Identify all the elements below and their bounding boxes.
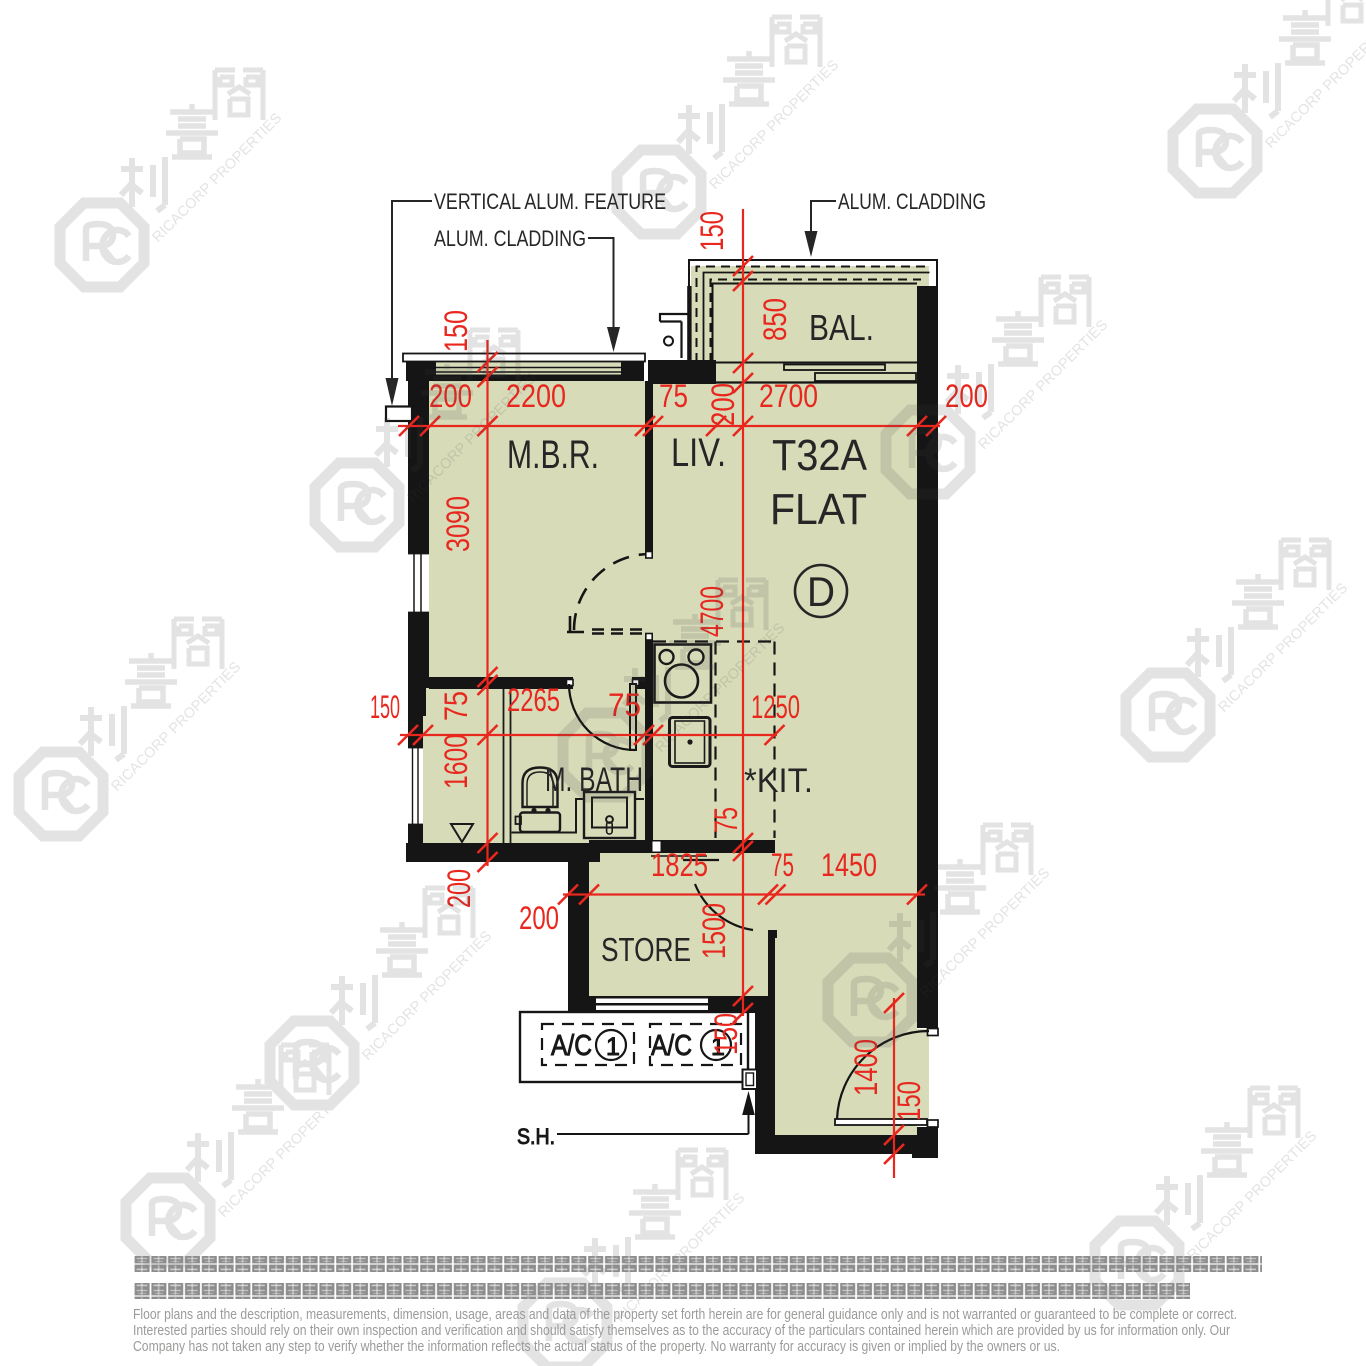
svg-text:Company has not taken any step: Company has not taken any step to verify… [133,1339,1060,1355]
svg-text:150: 150 [370,689,400,725]
svg-text:200: 200 [705,383,741,426]
svg-text:75: 75 [771,847,794,883]
svg-text:M.B.R.: M.B.R. [507,433,599,477]
svg-text:LIV.: LIV. [671,431,726,475]
svg-text:1250: 1250 [751,689,800,725]
svg-text:A/C: A/C [651,1030,692,1062]
svg-text:1600: 1600 [438,734,474,789]
svg-text:S.H.: S.H. [517,1124,555,1149]
svg-text:ALUM. CLADDING: ALUM. CLADDING [838,189,986,214]
svg-text:850: 850 [757,298,793,341]
svg-text:BAL.: BAL. [809,307,874,348]
svg-text:1: 1 [606,1033,620,1061]
svg-text:A/C: A/C [551,1030,592,1062]
svg-text:Floor plans and the descriptio: Floor plans and the description, measure… [133,1307,1237,1323]
svg-text:200: 200 [519,900,559,936]
svg-text:75: 75 [708,807,744,833]
svg-text:Interested parties should rely: Interested parties should rely on their … [133,1323,1230,1339]
svg-text:3090: 3090 [440,496,476,552]
svg-text:1400: 1400 [848,1039,884,1096]
svg-text:1450: 1450 [821,847,877,883]
svg-text:2265: 2265 [507,682,560,718]
svg-text:VERTICAL ALUM. FEATURE: VERTICAL ALUM. FEATURE [434,189,666,214]
svg-text:75: 75 [438,691,474,721]
svg-text:2700: 2700 [759,378,818,414]
svg-text:150: 150 [891,1081,927,1121]
svg-text:T32A: T32A [772,431,868,480]
svg-text:D: D [807,568,835,615]
svg-text:1500: 1500 [696,903,732,959]
svg-text:150: 150 [708,1013,744,1055]
svg-text:FLAT: FLAT [770,485,867,534]
svg-text:STORE: STORE [601,931,691,968]
svg-text:75: 75 [659,378,688,414]
svg-text:ALUM. CLADDING: ALUM. CLADDING [434,226,586,251]
svg-text:*KIT.: *KIT. [744,762,813,800]
svg-text:1825: 1825 [651,847,708,883]
